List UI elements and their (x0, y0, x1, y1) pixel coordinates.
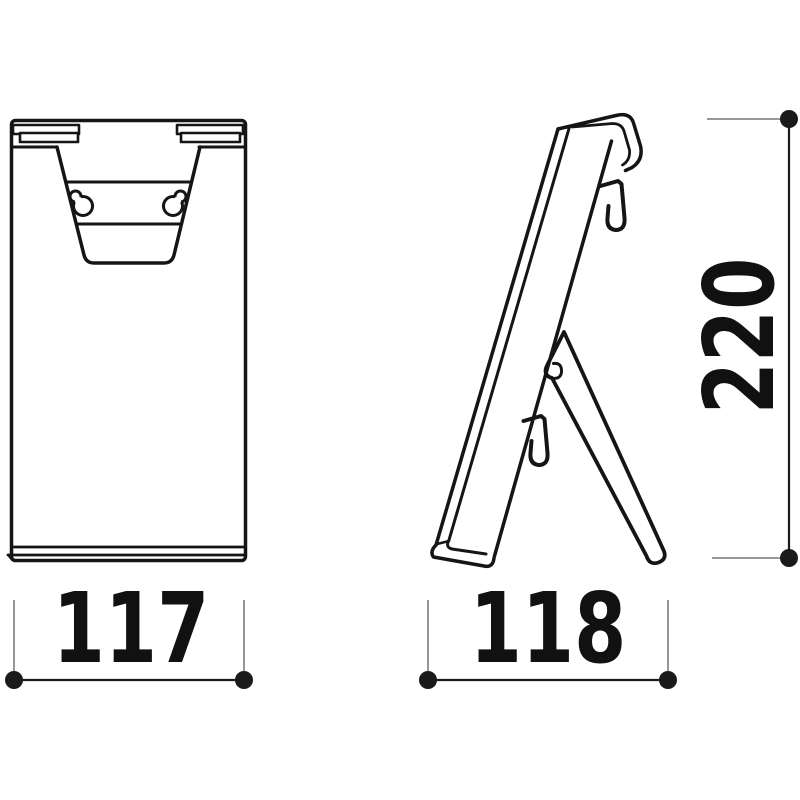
panel-front-inner (448, 129, 569, 555)
dimension-dot (780, 549, 798, 567)
technical-drawing-page: 117 118 220 (0, 0, 800, 800)
side-view (432, 115, 665, 567)
rear-hook-upper (601, 181, 625, 230)
side-depth-label: 118 (470, 580, 627, 678)
dimension-dot (5, 671, 23, 689)
front-view (8, 121, 246, 561)
side-height-label: 220 (691, 258, 789, 415)
dimension-dot (419, 671, 437, 689)
dimension-dot (659, 671, 677, 689)
front-view-body (12, 121, 246, 561)
dimension-dot (235, 671, 253, 689)
kickstand-leg (546, 332, 665, 563)
panel-bottom-edge (432, 545, 494, 566)
panel-back-line (495, 141, 612, 556)
panel-top-cap-inner (572, 124, 630, 166)
top-clip-left (13, 125, 79, 142)
dimension-dot (780, 110, 798, 128)
front-width-label: 117 (53, 580, 210, 678)
panel-front-outer (436, 129, 558, 545)
top-clip-right (177, 125, 243, 142)
